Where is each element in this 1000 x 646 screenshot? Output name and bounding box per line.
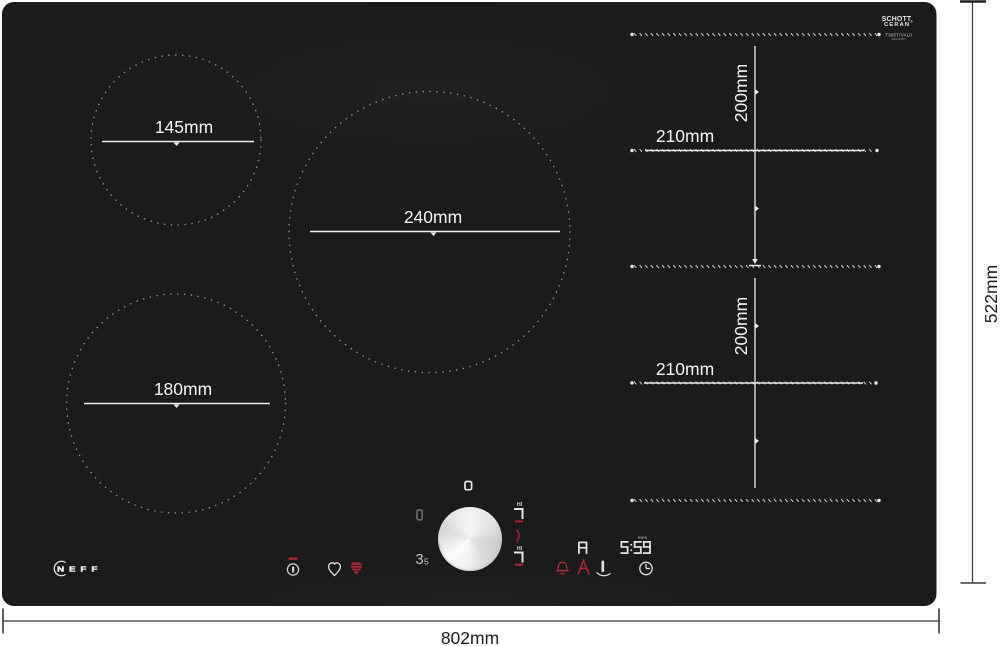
svg-text:145mm: 145mm <box>155 117 213 137</box>
svg-text:522mm: 522mm <box>981 265 1000 323</box>
svg-text:180mm: 180mm <box>154 379 212 399</box>
svg-text:mins: mins <box>638 535 648 540</box>
svg-text:210mm: 210mm <box>656 359 714 379</box>
svg-text:3: 3 <box>416 552 424 568</box>
svg-text:200mm: 200mm <box>731 297 751 355</box>
svg-text:5: 5 <box>424 557 429 567</box>
svg-text:210mm: 210mm <box>656 126 714 146</box>
svg-text:CERAN: CERAN <box>884 22 910 28</box>
svg-text:240mm: 240mm <box>404 207 462 227</box>
svg-text:HI: HI <box>517 502 523 508</box>
svg-text:200mm: 200mm <box>731 64 751 122</box>
svg-text:T58FT/VAL0: T58FT/VAL0 <box>886 32 913 37</box>
svg-text:802mm: 802mm <box>441 628 499 646</box>
svg-text:HI: HI <box>517 546 523 552</box>
svg-text:9001234567: 9001234567 <box>892 37 907 41</box>
svg-text:NEFF: NEFF <box>57 565 102 573</box>
